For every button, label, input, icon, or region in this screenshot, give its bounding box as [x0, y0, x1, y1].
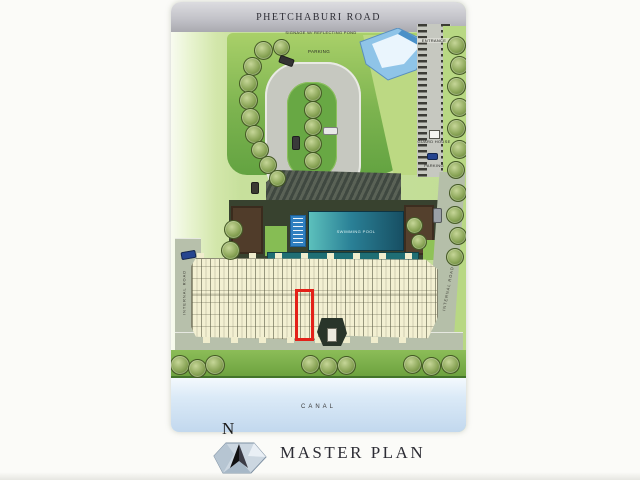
tree-icon — [273, 39, 290, 56]
parking-label-right: PARKING — [417, 163, 451, 168]
tree-icon — [301, 355, 320, 374]
tree-icon — [221, 241, 240, 260]
tree-icon — [447, 36, 466, 55]
parking-label-top: PARKING — [299, 49, 339, 54]
scanned-master-plan-page: PHETCHABURI ROAD SIGNAGE W/ REFLECTING P… — [0, 0, 640, 480]
guard-house-label: GUARD HOUSE — [411, 139, 457, 144]
tree-icon — [447, 161, 465, 179]
tree-icon — [447, 119, 466, 138]
north-arrow-icon — [208, 440, 270, 476]
car-icon — [427, 153, 438, 160]
swimming-pool: SWIMMING POOL — [308, 211, 404, 251]
clubhouse-roof — [266, 170, 401, 204]
tree-icon — [188, 359, 207, 378]
internal-road-label-left: INTERNAL ROAD — [182, 263, 187, 323]
tree-icon — [171, 355, 190, 375]
residential-building — [191, 258, 438, 340]
tree-icon — [446, 206, 464, 224]
tree-icon — [254, 41, 273, 60]
car-icon — [292, 136, 300, 150]
tree-icon — [446, 248, 464, 266]
tree-icon — [337, 356, 356, 375]
master-plan-title: MASTER PLAN — [280, 443, 425, 463]
tree-icon — [447, 77, 466, 96]
parking-stripes-left — [418, 24, 427, 177]
tree-icon — [239, 91, 258, 110]
canal-label: CANAL — [171, 404, 466, 410]
car-icon — [323, 127, 338, 135]
tree-icon — [450, 56, 467, 75]
tree-icon — [450, 98, 467, 117]
pool-label: SWIMMING POOL — [337, 229, 376, 234]
plan-sheet: PHETCHABURI ROAD SIGNAGE W/ REFLECTING P… — [171, 2, 466, 432]
guard-house — [429, 130, 440, 139]
tree-icon — [441, 355, 460, 374]
tree-icon — [243, 57, 262, 76]
tree-icon — [450, 140, 467, 159]
tree-icon — [319, 357, 338, 376]
entrance-label: ENTRANCE — [417, 38, 451, 43]
tree-icon — [449, 227, 466, 245]
highlighted-unit-marker — [295, 289, 314, 341]
legend-panel — [290, 215, 306, 247]
tree-icon — [241, 108, 260, 127]
tree-icon — [304, 101, 322, 119]
tree-icon — [304, 152, 322, 170]
tree-icon — [406, 217, 423, 234]
lobby-structure — [327, 328, 337, 342]
north-label: N — [222, 419, 234, 439]
tree-icon — [269, 170, 286, 187]
tree-icon — [239, 74, 258, 93]
tree-icon — [304, 135, 322, 153]
tree-icon — [304, 84, 322, 102]
tree-icon — [411, 234, 427, 250]
phetchaburi-road-label: PHETCHABURI ROAD — [256, 12, 381, 23]
tree-icon — [205, 355, 225, 375]
car-icon — [251, 182, 259, 194]
canal: CANAL — [171, 378, 466, 432]
tree-icon — [403, 355, 422, 374]
tree-icon — [449, 184, 466, 202]
tree-icon — [422, 357, 441, 376]
tree-icon — [224, 220, 243, 239]
signage-label: SIGNAGE W/ REFLECTING POND — [281, 30, 361, 35]
car-icon — [433, 208, 442, 223]
tree-icon — [304, 118, 322, 136]
